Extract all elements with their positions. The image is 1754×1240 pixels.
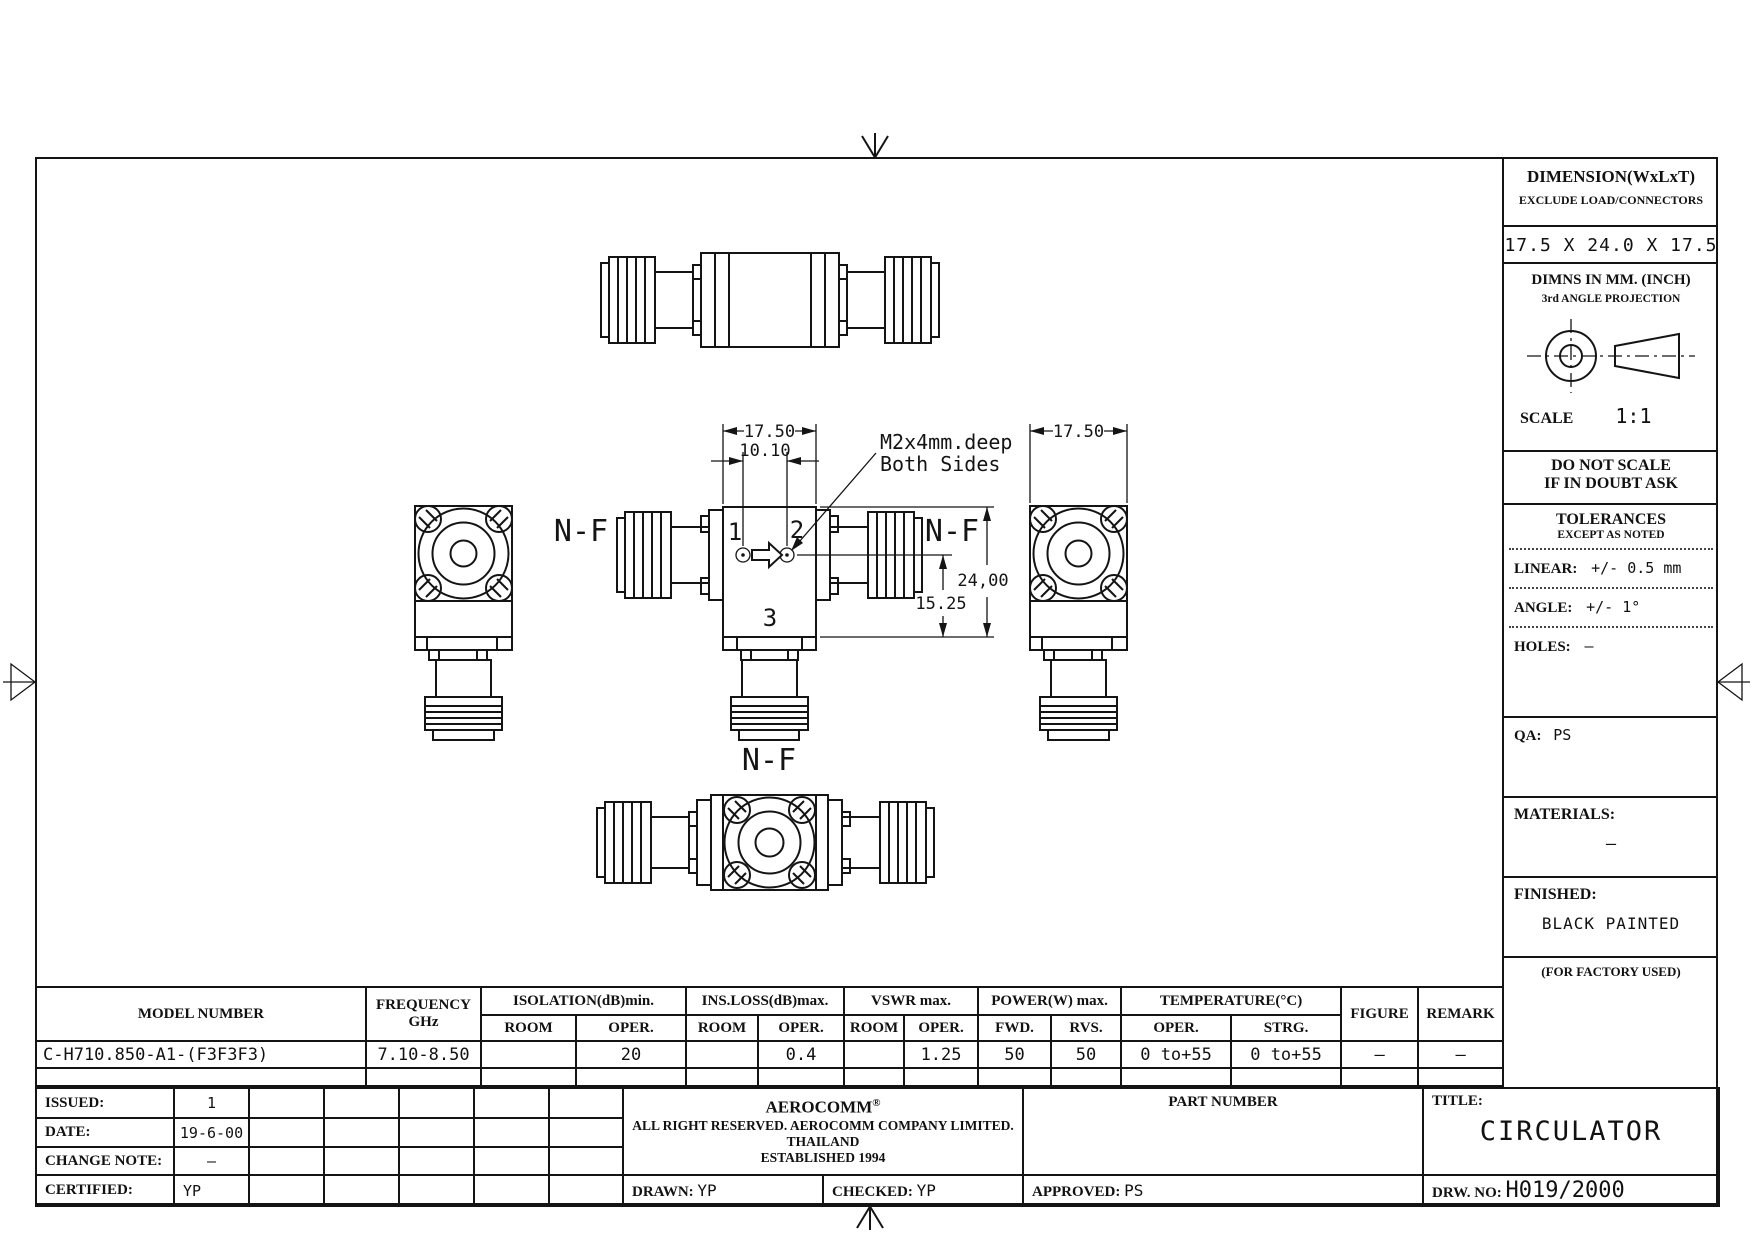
certified-label: CERTIFIED: [36, 1175, 174, 1206]
company-cell: AEROCOMM® ALL RIGHT RESERVED. AEROCOMM C… [623, 1088, 1023, 1175]
power-fwd-value: 50 [978, 1041, 1051, 1068]
do-not-scale-line1: DO NOT SCALE [1504, 452, 1718, 475]
drawn-label: DRAWN: [632, 1184, 694, 1200]
date-value: 19-6-00 [174, 1118, 249, 1147]
center-mark-bottom-icon [857, 1207, 883, 1231]
col-header-power: POWER(W) max. [978, 987, 1121, 1015]
finished-label: FINISHED: [1504, 878, 1718, 904]
dimension-value: 17.5 X 24.0 X 17.5 [1504, 227, 1718, 256]
col-header-frequency: FREQUENCY GHz [366, 987, 481, 1041]
holes-label: HOLES: [1514, 639, 1571, 655]
change-note-value: – [174, 1147, 249, 1175]
date-label: DATE: [36, 1118, 174, 1147]
drawn-cell: DRAWN: YP [623, 1175, 823, 1206]
qa-label: QA: [1514, 728, 1542, 744]
scale-label: SCALE [1520, 410, 1573, 428]
projection-section: DIMNS IN MM. (INCH) 3rd ANGLE PROJECTION… [1504, 264, 1718, 452]
qa-value: PS [1553, 726, 1571, 744]
subheader-isolation-oper: OPER. [576, 1015, 686, 1041]
dimension-value-section: 17.5 X 24.0 X 17.5 [1504, 227, 1718, 264]
spec-row-empty [36, 1068, 1503, 1086]
subheader-power-rvs: RVS. [1051, 1015, 1121, 1041]
col-header-model: MODEL NUMBER [36, 987, 366, 1041]
center-mark-top-icon [862, 133, 888, 158]
isolation-room-value [481, 1041, 576, 1068]
col-header-remark: REMARK [1418, 987, 1503, 1041]
drw-no-label: DRW. NO: [1432, 1185, 1502, 1201]
dimension-subheader: EXCLUDE LOAD/CONNECTORS [1504, 187, 1718, 208]
certified-value: YP [174, 1175, 249, 1206]
col-header-ins-loss: INS.LOSS(dB)max. [686, 987, 844, 1015]
approved-value: PS [1124, 1181, 1143, 1200]
linear-label: LINEAR: [1514, 561, 1577, 577]
dimension-header: DIMENSION(WxLxT) [1504, 157, 1718, 187]
col-header-isolation: ISOLATION(dB)min. [481, 987, 686, 1015]
subheader-temp-strg: STRG. [1231, 1015, 1341, 1041]
subheader-insloss-oper: OPER. [758, 1015, 844, 1041]
drawn-value: YP [697, 1181, 716, 1200]
info-panel: DIMENSION(WxLxT) EXCLUDE LOAD/CONNECTORS… [1502, 157, 1718, 1087]
subheader-power-fwd: FWD. [978, 1015, 1051, 1041]
remark-value: — [1418, 1041, 1503, 1068]
units-note: DIMNS IN MM. (INCH) [1504, 264, 1718, 289]
third-angle-projection-icon [1523, 311, 1699, 397]
checked-cell: CHECKED: YP [823, 1175, 1023, 1206]
do-not-scale-line2: IF IN DOUBT ASK [1504, 475, 1718, 493]
scale-value: 1:1 [1615, 404, 1651, 428]
spec-table: MODEL NUMBER FREQUENCY GHz ISOLATION(dB)… [35, 986, 1504, 1087]
checked-label: CHECKED: [832, 1184, 913, 1200]
qa-section: QA: PS [1504, 718, 1718, 798]
drw-no-value: H019/2000 [1506, 1178, 1625, 1203]
linear-value: +/- 0.5 mm [1591, 559, 1681, 577]
subheader-insloss-room: ROOM [686, 1015, 758, 1041]
frequency-header-line1: FREQUENCY [367, 997, 480, 1014]
factory-note-section: (FOR FACTORY USED) [1504, 958, 1718, 1087]
change-note-label: CHANGE NOTE: [36, 1147, 174, 1175]
frequency-header-unit: GHz [367, 1014, 480, 1031]
center-mark-right-icon [1718, 664, 1750, 700]
finished-value: BLACK PAINTED [1504, 904, 1718, 933]
holes-value: — [1584, 637, 1593, 655]
issued-label: ISSUED: [36, 1088, 174, 1118]
materials-section: MATERIALS: — [1504, 798, 1718, 878]
angle-label: ANGLE: [1514, 600, 1572, 616]
col-header-temperature: TEMPERATURE(°C) [1121, 987, 1341, 1015]
registered-trademark-icon: ® [872, 1097, 880, 1109]
materials-value: — [1504, 824, 1718, 854]
subheader-vswr-oper: OPER. [904, 1015, 978, 1041]
approved-label: APPROVED: [1032, 1184, 1120, 1200]
title-label: TITLE: [1424, 1089, 1718, 1110]
subheader-vswr-room: ROOM [844, 1015, 904, 1041]
col-header-vswr: VSWR max. [844, 987, 978, 1015]
factory-note: (FOR FACTORY USED) [1504, 958, 1718, 980]
figure-value: — [1341, 1041, 1418, 1068]
spec-row: C-H710.850-A1-(F3F3F3) 7.10-8.50 20 0.4 … [36, 1041, 1503, 1068]
company-name: AEROCOMM [766, 1098, 873, 1117]
temp-strg-value: 0 to+55 [1231, 1041, 1341, 1068]
isolation-oper-value: 20 [576, 1041, 686, 1068]
model-number-value: C-H710.850-A1-(F3F3F3) [36, 1041, 366, 1068]
finished-section: FINISHED: BLACK PAINTED [1504, 878, 1718, 958]
company-rights-line: ALL RIGHT RESERVED. AEROCOMM COMPANY LIM… [624, 1118, 1022, 1150]
vswr-oper-value: 1.25 [904, 1041, 978, 1068]
title-block: ISSUED: 1 AEROCOMM® ALL RIGHT RESERVED. … [35, 1087, 1720, 1207]
approved-cell: APPROVED: PS [1023, 1175, 1423, 1206]
insloss-oper-value: 0.4 [758, 1041, 844, 1068]
projection-note: 3rd ANGLE PROJECTION [1504, 289, 1718, 305]
issued-value: 1 [174, 1088, 249, 1118]
company-established-line: ESTABLISHED 1994 [624, 1150, 1022, 1166]
part-number-header: PART NUMBER [1023, 1088, 1423, 1175]
tolerances-title: TOLERANCES [1504, 505, 1718, 529]
drawing-sheet: 1 2 3 N-F N-F N-F 17.50 10.10 [0, 0, 1754, 1240]
do-not-scale-section: DO NOT SCALE IF IN DOUBT ASK [1504, 452, 1718, 505]
center-mark-left-icon [3, 664, 35, 700]
frequency-value: 7.10-8.50 [366, 1041, 481, 1068]
angle-value: +/- 1° [1586, 598, 1640, 616]
subheader-isolation-room: ROOM [481, 1015, 576, 1041]
col-header-figure: FIGURE [1341, 987, 1418, 1041]
insloss-room-value [686, 1041, 758, 1068]
subheader-temp-oper: OPER. [1121, 1015, 1231, 1041]
tolerances-section: TOLERANCES EXCEPT AS NOTED LINEAR: +/- 0… [1504, 505, 1718, 718]
title-value: CIRCULATOR [1424, 1116, 1718, 1147]
checked-value: YP [917, 1181, 936, 1200]
materials-label: MATERIALS: [1504, 798, 1718, 824]
drw-no-cell: DRW. NO: H019/2000 [1423, 1175, 1719, 1206]
tolerances-subtitle: EXCEPT AS NOTED [1504, 529, 1718, 541]
dimension-section: DIMENSION(WxLxT) EXCLUDE LOAD/CONNECTORS [1504, 157, 1718, 227]
title-cell: TITLE: CIRCULATOR [1423, 1088, 1719, 1175]
temp-oper-value: 0 to+55 [1121, 1041, 1231, 1068]
power-rvs-value: 50 [1051, 1041, 1121, 1068]
vswr-room-value [844, 1041, 904, 1068]
